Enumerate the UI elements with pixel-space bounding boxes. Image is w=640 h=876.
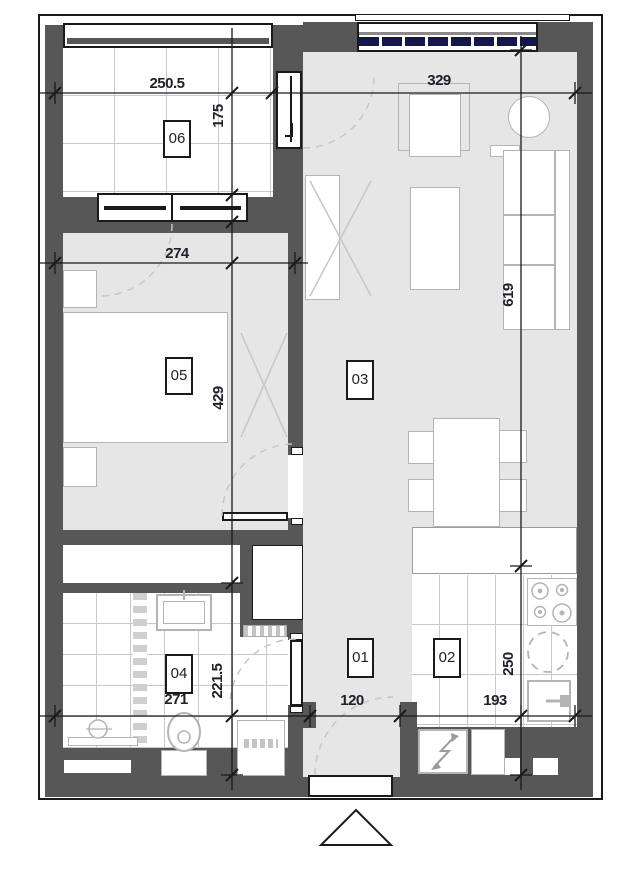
floor-plan-canvas: 250.5 175 329 274 429 619 271 221.5 120 … [0,0,640,876]
washing-machine-marks [244,739,278,748]
dim-kitchen-depth: 250 [501,642,517,686]
bath-sink-basin [163,601,205,624]
north-marker-icon [321,810,391,845]
dim-balcony-width: 250.5 [137,76,197,92]
dim-balcony-depth: 175 [211,94,227,138]
wall-top-right [538,22,593,52]
radiator [243,625,287,637]
entry-pier-right [400,702,417,728]
sofa-seat-divider-2 [504,264,554,266]
dining-table [433,418,500,527]
wall-top-mid [303,22,357,52]
balcony-window-top [63,23,273,48]
nightstand-bottom [63,447,97,487]
balcony-door-handle [285,123,293,137]
room-label-01: 01 [347,638,374,678]
dim-kitchen-width: 193 [470,693,520,709]
wall-bedroom-east [288,233,303,455]
bedroom-door-leaf [222,512,288,521]
dim-living-width: 329 [414,73,464,89]
bath-door-leaf [290,640,303,706]
stove [527,578,577,626]
entry-door [308,775,393,797]
dim-entry-width: 120 [327,693,377,709]
window-sash-left [104,206,166,210]
bed [63,312,228,443]
wall-right [577,50,593,797]
living-window-mullion [359,32,536,35]
bedroom-window-band [97,193,248,222]
bath-door-jamb-bottom [290,706,303,713]
kitchen-wall-notch-a [505,758,520,775]
bath-wall-niche [64,760,131,773]
room-label-05: 05 [165,357,193,395]
bath-door-jamb-top [290,633,303,640]
nightstand-top [63,270,97,308]
room-label-06: 06 [163,120,191,158]
dim-bedroom-depth: 429 [211,376,227,420]
wardrobe-living [305,175,340,300]
armchair-seat [409,94,461,157]
living-window [357,22,538,52]
room-label-02: 02 [433,638,461,678]
window-divider [171,195,173,220]
room-label-03: 03 [346,360,374,400]
sofa-back-line [554,151,556,329]
kitchen-box [471,729,505,775]
washing-machine [237,720,285,776]
balcony-window-frame-line [67,38,269,44]
kitchen-wall-notch-b [533,758,558,775]
living-window-glazing [359,37,536,46]
shaft-inset [252,545,303,620]
dim-living-depth: 619 [501,273,517,317]
bath-sink [156,594,212,631]
sofa-seat-divider-1 [504,214,554,216]
side-table-round [508,96,550,138]
living-window-ledge [355,14,570,21]
wall-left [45,25,63,797]
bedroom-door-jamb-top [291,447,303,455]
bedroom-door-jamb-bottom [291,518,303,525]
coffee-table [410,187,460,290]
kitchen-counter [412,527,577,574]
balcony-door [276,71,302,149]
kitchen-sink-counter [527,680,571,722]
shower-partition [133,593,147,743]
wall-bedroom-south [63,530,240,545]
dim-bath-width: 271 [151,692,201,708]
electrical-panel [418,729,468,774]
dim-bath-depth: 221.5 [210,653,226,709]
shower-channel [68,737,138,746]
dim-bedroom-width: 274 [152,246,202,262]
window-sash-right [180,206,241,210]
room-label-04: 04 [165,654,193,694]
toilet-tank [161,750,207,776]
wall-bath-north [63,583,240,593]
